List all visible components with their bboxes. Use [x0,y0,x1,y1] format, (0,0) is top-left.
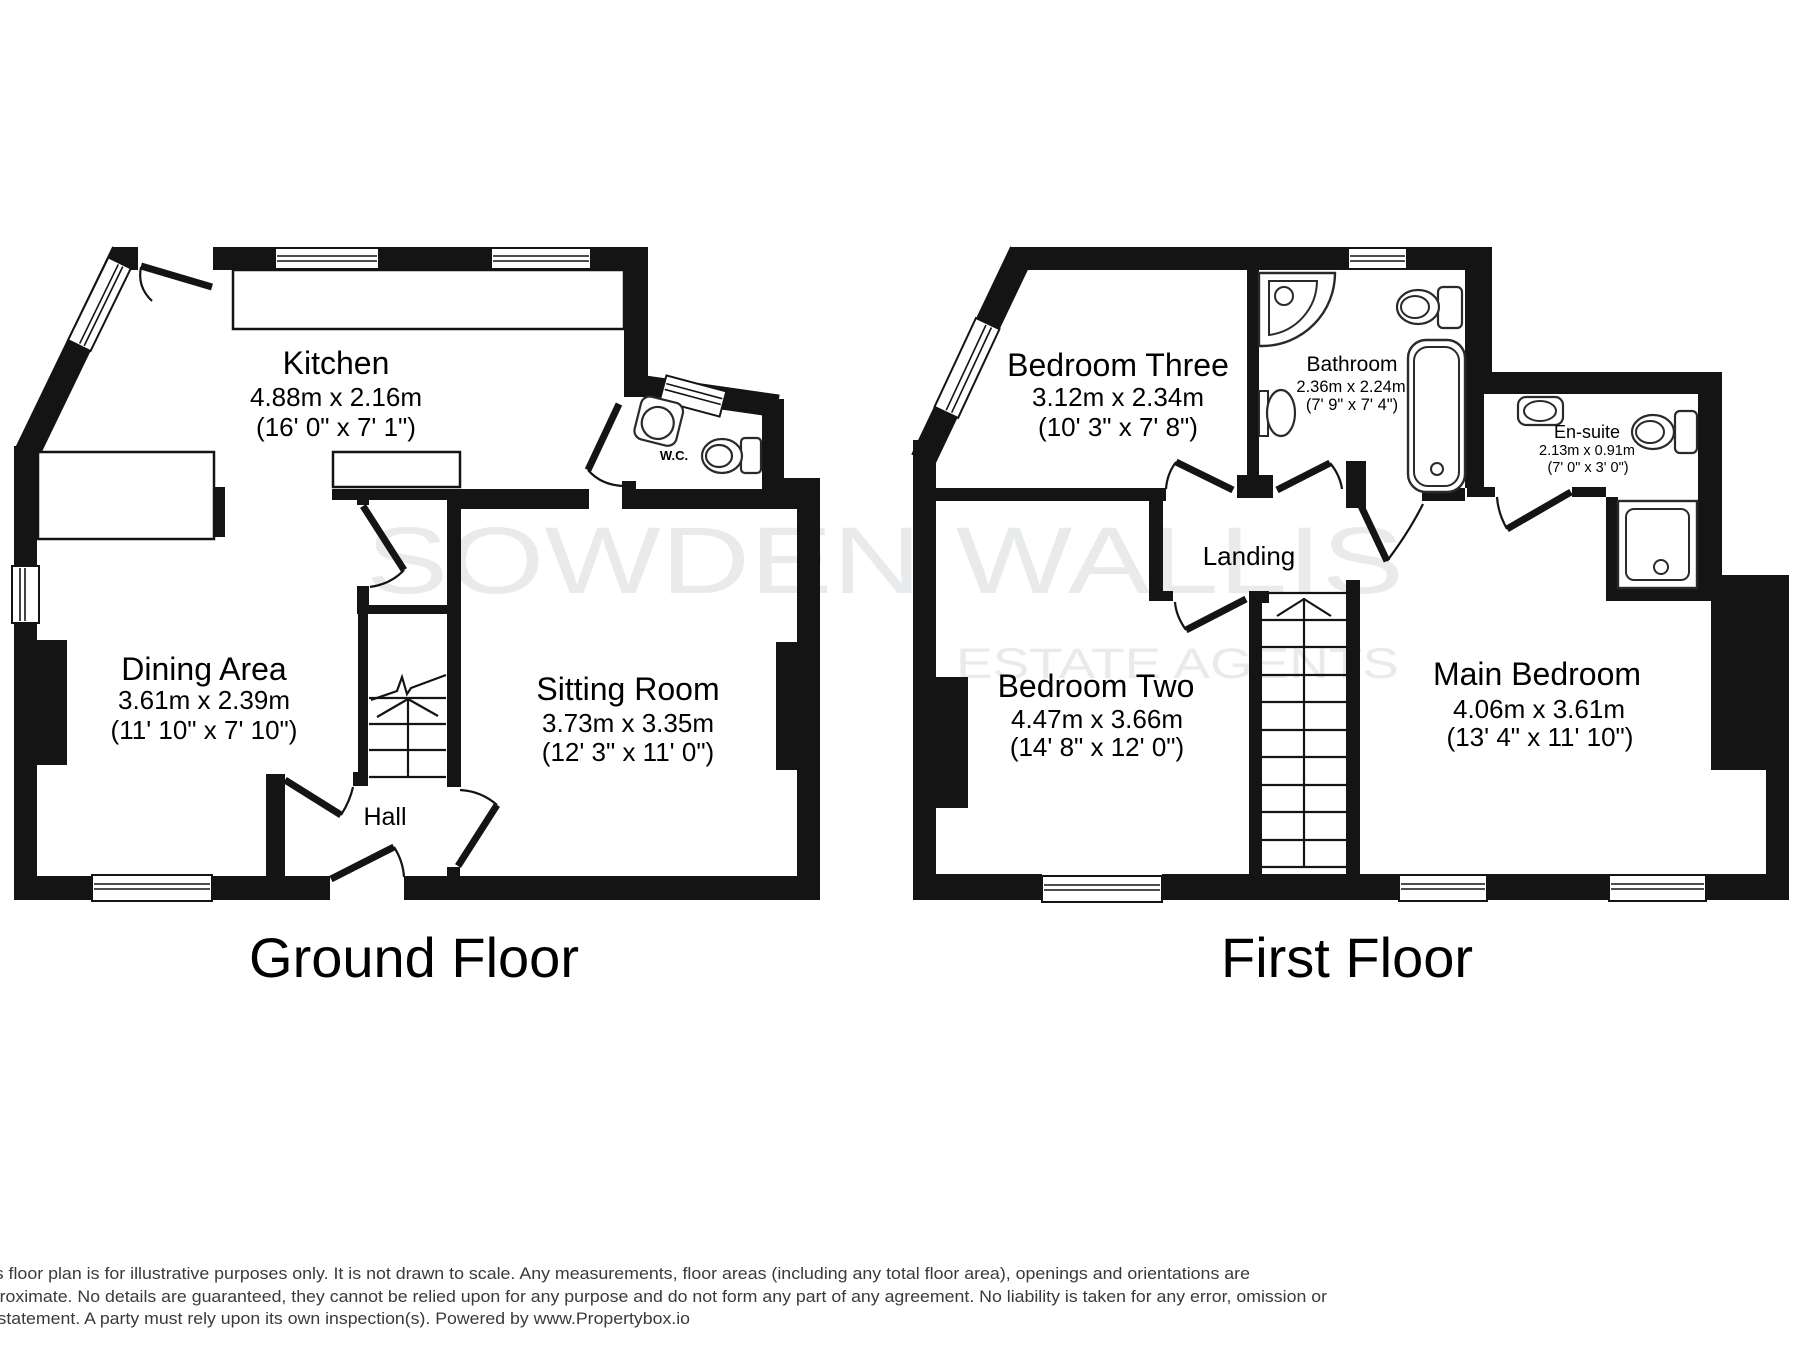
svg-text:4.88m x 2.16m: 4.88m x 2.16m [250,382,422,412]
svg-text:Kitchen: Kitchen [283,345,390,381]
svg-text:Dining Area: Dining Area [121,651,287,687]
svg-text:4.06m x 3.61m: 4.06m x 3.61m [1453,694,1625,724]
svg-text:En-suite: En-suite [1554,422,1620,442]
svg-text:2.36m x 2.24m: 2.36m x 2.24m [1296,378,1405,396]
svg-text:First Floor: First Floor [1221,926,1473,989]
svg-text:This floor plan is for illustr: This floor plan is for illustrative purp… [0,1264,1250,1283]
svg-text:(11' 10" x 7' 10"): (11' 10" x 7' 10") [111,715,298,745]
svg-text:approximate. No details are gu: approximate. No details are guaranteed, … [0,1287,1327,1306]
svg-text:3.61m x 2.39m: 3.61m x 2.39m [118,685,290,715]
svg-text:Sitting Room: Sitting Room [536,671,719,707]
svg-text:4.47m x 3.66m: 4.47m x 3.66m [1011,704,1183,734]
svg-text:(16' 0" x 7' 1"): (16' 0" x 7' 1") [256,412,416,442]
svg-text:misstatement. A party must rel: misstatement. A party must rely upon its… [0,1309,690,1328]
svg-text:(13' 4" x 11' 10"): (13' 4" x 11' 10") [1447,722,1634,752]
svg-text:(12' 3" x 11' 0"): (12' 3" x 11' 0") [542,737,714,767]
svg-text:W.C.: W.C. [660,448,688,463]
svg-text:(7' 9" x 7' 4"): (7' 9" x 7' 4") [1306,396,1398,414]
svg-text:Main Bedroom: Main Bedroom [1433,656,1641,692]
svg-text:Bathroom: Bathroom [1306,353,1397,376]
svg-text:3.73m x 3.35m: 3.73m x 3.35m [542,708,714,738]
svg-text:Bedroom Two: Bedroom Two [998,668,1195,704]
svg-text:3.12m x 2.34m: 3.12m x 2.34m [1032,382,1204,412]
svg-text:(7' 0" x 3' 0"): (7' 0" x 3' 0") [1547,460,1628,476]
svg-text:Ground Floor: Ground Floor [249,926,579,989]
svg-text:2.13m x 0.91m: 2.13m x 0.91m [1539,443,1635,459]
svg-text:(14' 8" x 12' 0"): (14' 8" x 12' 0") [1010,732,1184,762]
svg-text:Bedroom Three: Bedroom Three [1007,347,1229,383]
svg-text:Hall: Hall [363,803,406,831]
svg-text:(10' 3" x 7' 8"): (10' 3" x 7' 8") [1038,412,1198,442]
svg-text:Landing: Landing [1203,541,1296,571]
